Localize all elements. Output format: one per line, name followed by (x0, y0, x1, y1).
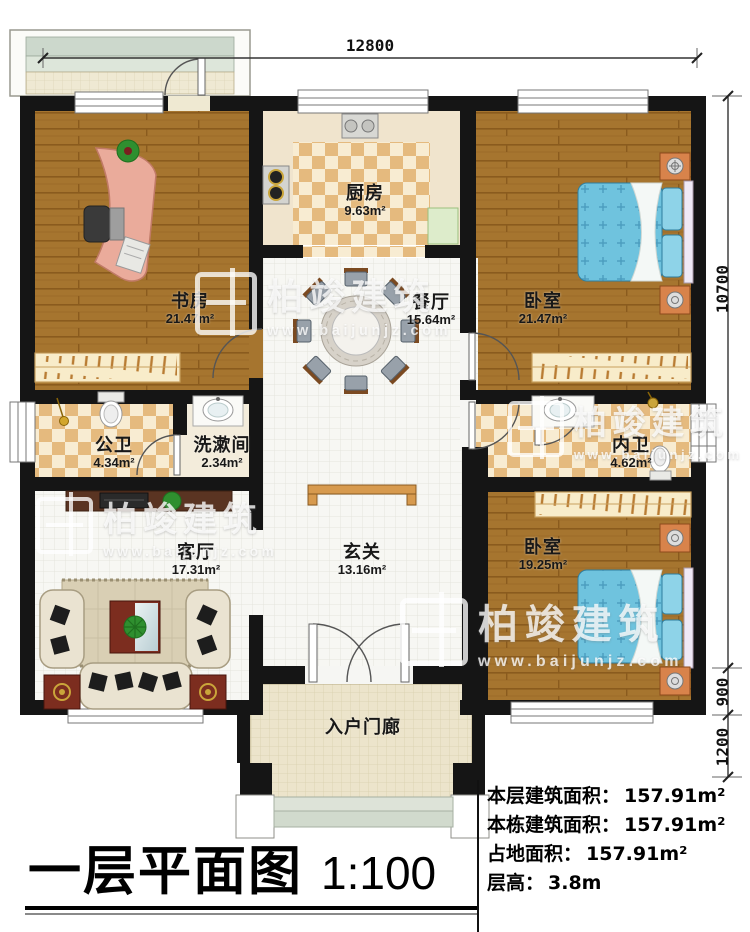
window-innbath-right (691, 404, 716, 462)
bed1-headboard (684, 181, 693, 283)
dim-right-lower: 1200 (713, 722, 729, 772)
room-label-porch: 入户门廊 (325, 718, 401, 737)
bed2-headboard (684, 568, 693, 668)
room-label-washroom: 洗漱间 2.34m² (194, 436, 251, 470)
floor-porch (250, 684, 472, 797)
kitchen-threshold (303, 246, 425, 257)
info-value: 157.91m² (624, 814, 725, 836)
wardrobe-study (35, 353, 180, 382)
tv-console (66, 491, 232, 511)
door-leaf-bedroom1 (469, 333, 475, 380)
column-base (236, 795, 274, 838)
door-leaf-entry-right (401, 624, 409, 682)
office-chair (84, 206, 110, 242)
drawing-scale: 1:100 (321, 844, 436, 902)
step (274, 797, 453, 811)
dim-right-mid: 900 (713, 670, 729, 714)
info-value: 3.8m (548, 872, 601, 894)
title-block: 一层平面图 1:100 (28, 843, 436, 902)
bed1-pillow (662, 188, 682, 230)
door-leaf-entry-left (309, 624, 317, 682)
porch-column (453, 763, 485, 795)
shower-head (60, 417, 69, 426)
terrace (10, 30, 250, 96)
room-label-kitchen: 厨房 9.63m² (344, 184, 385, 218)
info-label: 占地面积： (487, 839, 582, 866)
step (274, 811, 453, 827)
building-info: 本层建筑面积： 157.91m² 本栋建筑面积： 157.91m² 占地面积： … (487, 781, 725, 897)
room-label-bedroom2: 卧室 19.25m² (519, 538, 567, 572)
window-study-top (75, 92, 163, 113)
room-label-living: 客厅 17.31m² (172, 543, 220, 577)
wardrobe-bedroom2 (535, 492, 691, 517)
sofa-left (40, 590, 84, 668)
bed1-pillow (662, 235, 682, 277)
bed2-pillow (662, 574, 682, 614)
dim-right-upper: 10700 (713, 254, 729, 324)
toilet-tank (650, 471, 671, 480)
room-label-innbath: 内卫 4.62m² (610, 436, 651, 470)
room-label-dining: 餐厅 15.64m² (407, 293, 455, 327)
door-leaf-pubbath (174, 435, 180, 475)
washroom-fixtures (193, 396, 243, 426)
floorplan-page: 12800 10700 900 1200 书房 21.47m² 厨房 9.63m… (0, 0, 750, 932)
room-label-study: 书房 21.47m² (166, 292, 214, 326)
page-title: 一层平面图 (28, 843, 303, 901)
info-label: 层高： (487, 868, 544, 895)
shower-head (648, 398, 658, 408)
room-label-bedroom1: 卧室 21.47m² (519, 292, 567, 326)
info-divider (477, 780, 479, 932)
window-kitchen-top (298, 90, 428, 113)
sofa-right (186, 590, 230, 668)
fridge (428, 208, 458, 244)
info-row-building-area: 本栋建筑面积： 157.91m² (487, 810, 725, 839)
info-row-storey-height: 层高： 3.8m (487, 868, 725, 897)
porch-column (240, 763, 272, 795)
column-base (451, 795, 489, 838)
bed2-pillow (662, 620, 682, 660)
room-label-pubbath: 公卫 4.34m² (93, 436, 134, 470)
room-label-foyer: 玄关 13.16m² (338, 543, 386, 577)
info-label: 本栋建筑面积： (487, 810, 620, 837)
info-label: 本层建筑面积： (487, 781, 620, 808)
door-leaf-terrace (198, 58, 205, 95)
title-underline (25, 906, 477, 910)
info-value: 157.91m² (624, 785, 725, 807)
info-value: 157.91m² (586, 843, 687, 865)
dim-top: 12800 (320, 36, 420, 55)
wardrobe-bedroom1 (532, 353, 691, 382)
title-underline-thin (25, 913, 477, 915)
plant (163, 492, 181, 510)
window-bedroom2-bottom (511, 702, 653, 723)
window-bedroom1-top (518, 90, 648, 113)
info-row-floor-area: 本层建筑面积： 157.91m² (487, 781, 725, 810)
door-leaf-bedroom2-hall (469, 402, 475, 449)
info-row-footprint-area: 占地面积： 157.91m² (487, 839, 725, 868)
window-pubbath-left (10, 402, 35, 462)
